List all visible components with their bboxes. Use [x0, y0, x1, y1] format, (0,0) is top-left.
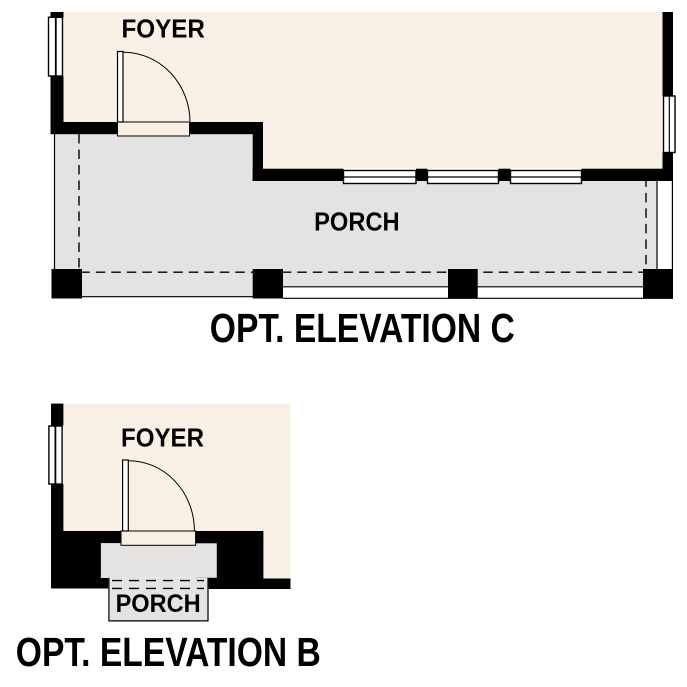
svg-text:PORCH: PORCH — [116, 590, 201, 618]
svg-text:FOYER: FOYER — [121, 425, 204, 453]
svg-text:PORCH: PORCH — [314, 209, 400, 237]
svg-text:OPT. ELEVATION B: OPT. ELEVATION B — [16, 629, 321, 675]
svg-text:OPT. ELEVATION C: OPT. ELEVATION C — [210, 305, 515, 351]
svg-text:FOYER: FOYER — [121, 14, 205, 44]
